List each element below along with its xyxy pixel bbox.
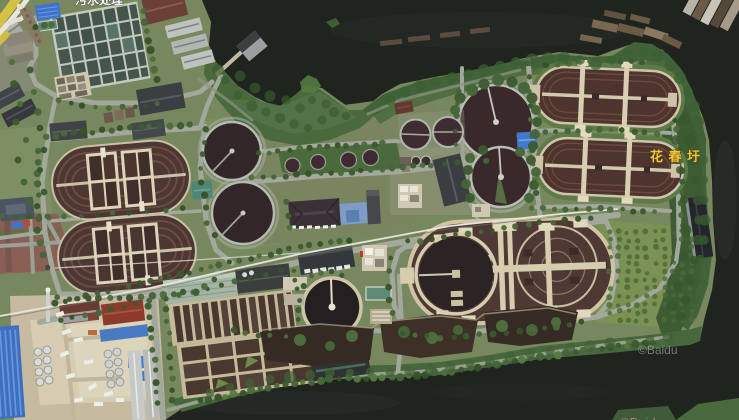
svg-text:©Baidu: ©Baidu bbox=[638, 343, 678, 357]
svg-text:污水处理: 污水处理 bbox=[75, 0, 123, 7]
svg-text:©Baidu: ©Baidu bbox=[620, 415, 663, 420]
svg-text:花春圩: 花春圩 bbox=[650, 149, 706, 164]
